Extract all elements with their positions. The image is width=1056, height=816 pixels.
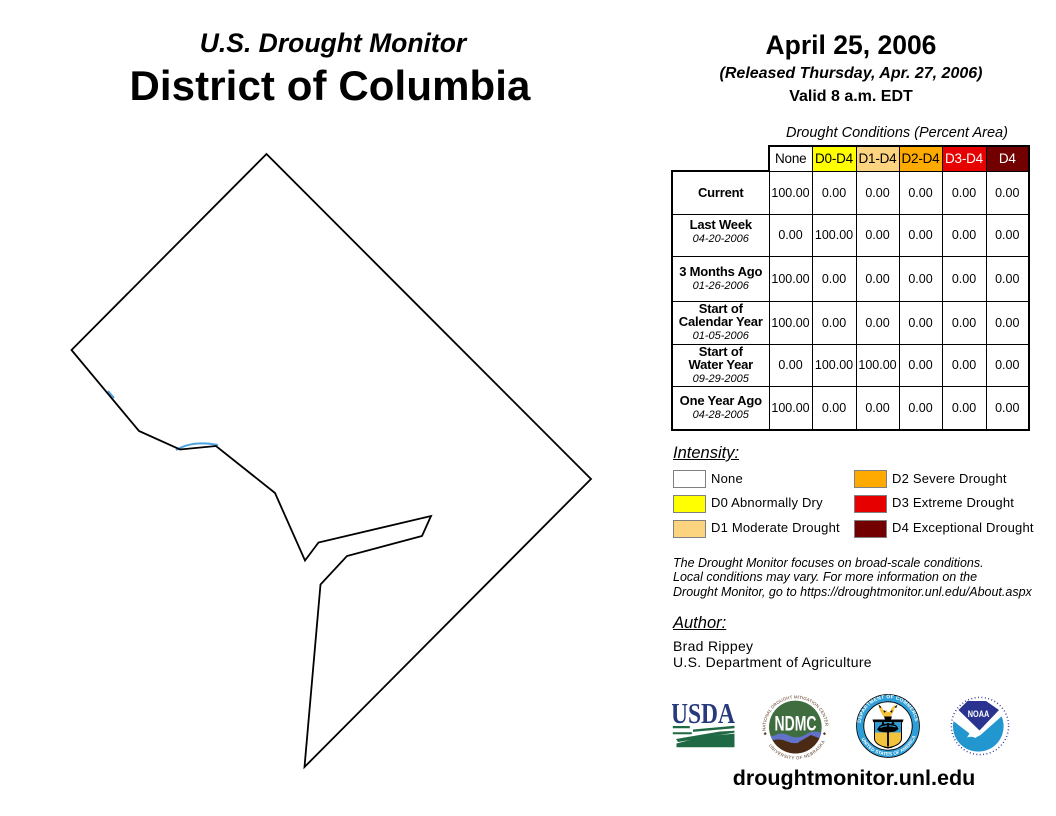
- svg-text:USDA: USDA: [672, 699, 736, 730]
- svg-text:NDMC: NDMC: [775, 713, 817, 736]
- svg-text:NOAA: NOAA: [968, 709, 990, 720]
